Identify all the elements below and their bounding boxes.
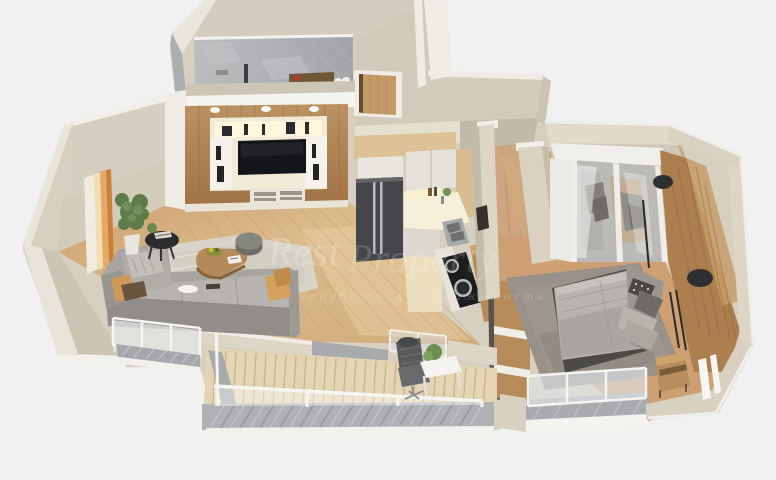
svg-text:Property: Property: [347, 236, 497, 281]
svg-text:®: ®: [392, 295, 401, 309]
svg-text:Rest: Rest: [267, 229, 341, 274]
svg-text:зарубежная недвижимость: зарубежная недвижимость: [299, 288, 547, 303]
